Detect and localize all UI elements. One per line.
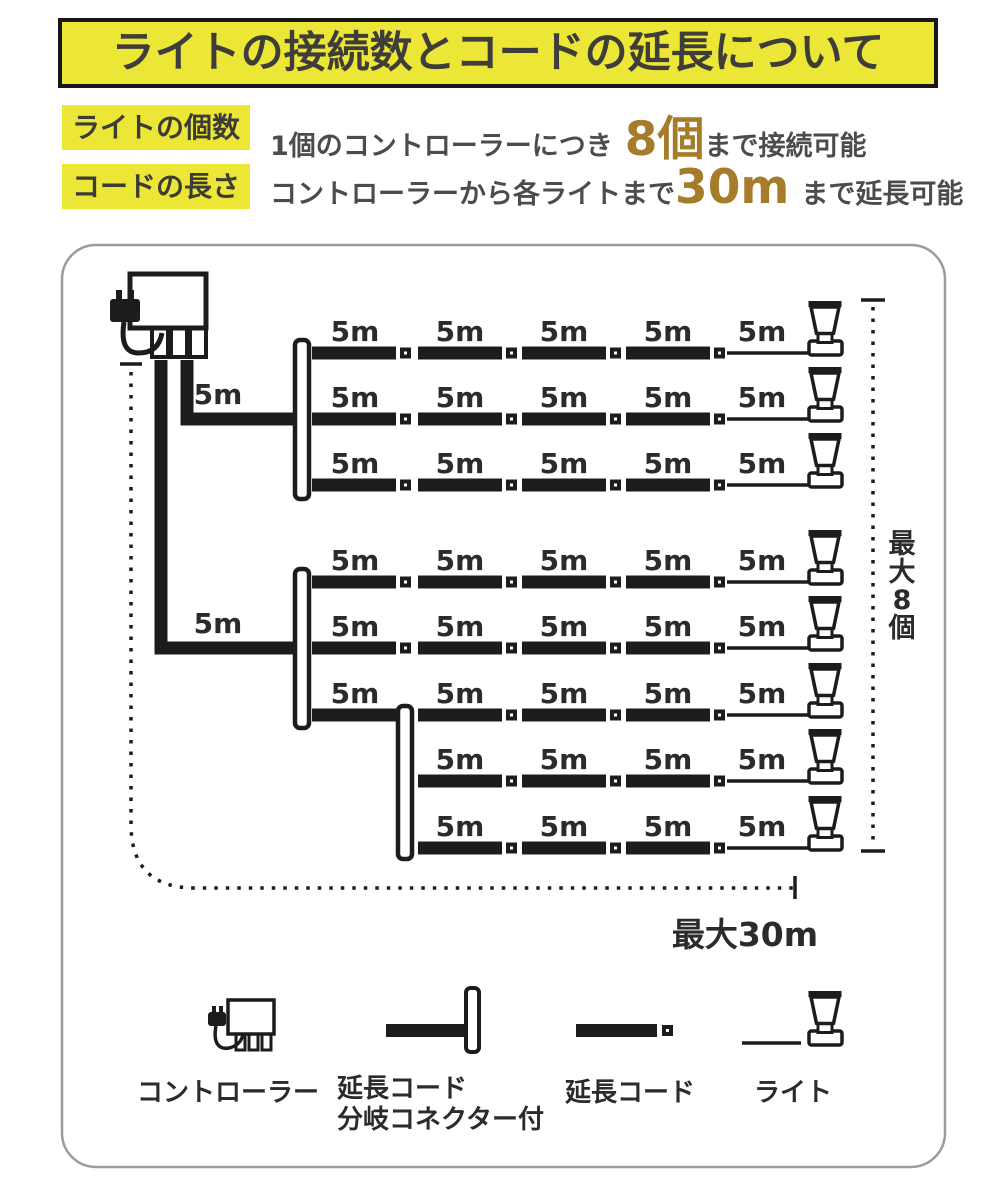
- length-label: 5m: [540, 610, 589, 643]
- light-icon: [809, 533, 843, 584]
- legend-light-icon: [742, 994, 842, 1045]
- length-label: 5m: [738, 381, 787, 414]
- feed-cord: 5m: [187, 360, 298, 419]
- length-label: 5m: [331, 610, 380, 643]
- extension-cord-icon: [418, 842, 502, 855]
- extension-cord-icon: [418, 709, 502, 722]
- length-label: 5m: [738, 447, 787, 480]
- extension-cord-icon: [522, 775, 606, 788]
- cord-row-8: 5m5m5m5m: [418, 799, 842, 855]
- length-label: 5m: [436, 610, 485, 643]
- extension-cord-icon: [522, 642, 606, 655]
- cord-row-6: 5m5m5m5m5m: [312, 666, 842, 722]
- cord-row-5: 5m5m5m5m5m: [312, 599, 842, 655]
- extension-cord-icon: [626, 709, 710, 722]
- controller-icon: [110, 274, 206, 357]
- length-label: 5m: [436, 315, 485, 348]
- extension-cord-icon: [522, 842, 606, 855]
- length-label: 5m: [644, 447, 693, 480]
- legend-branch-cord-icon: [386, 988, 479, 1052]
- max-length-label: 最大30m: [650, 908, 840, 956]
- length-label: 5m: [331, 315, 380, 348]
- extension-cord-icon: [522, 576, 606, 589]
- length-label: 5m: [738, 315, 787, 348]
- length-label: 5m: [540, 447, 589, 480]
- branch-connector-icon: [295, 569, 309, 728]
- extension-cord-icon: [418, 576, 502, 589]
- length-label: 5m: [644, 315, 693, 348]
- cord-row-4: 5m5m5m5m5m: [312, 533, 842, 589]
- light-icon: [809, 599, 843, 650]
- extension-cord-icon: [626, 479, 710, 492]
- length-label: 5m: [436, 810, 485, 843]
- length-label: 5m: [540, 743, 589, 776]
- light-icon: [809, 666, 843, 717]
- legend-label-line1: 延長コード: [337, 1074, 557, 1105]
- branch-connector-icon: [295, 340, 309, 499]
- length-label: 5m: [436, 381, 485, 414]
- extension-cord-icon: [626, 347, 710, 360]
- length-label: 5m: [738, 677, 787, 710]
- length-label: 5m: [644, 743, 693, 776]
- cord-row-1: 5m5m5m5m5m: [312, 304, 842, 360]
- extension-cord-icon: [418, 413, 502, 426]
- length-label: 5m: [644, 544, 693, 577]
- extension-cord-icon: [522, 347, 606, 360]
- length-label: 5m: [436, 677, 485, 710]
- cord-row-2: 5m5m5m5m5m: [312, 370, 842, 426]
- extension-cord-icon: [522, 709, 606, 722]
- page-root: ライトの接続数とコードの延長について ライトの個数 1個のコントローラーにつき8…: [0, 0, 1000, 1200]
- length-label: 5m: [540, 315, 589, 348]
- extension-cord-icon: [626, 642, 710, 655]
- legend-label-line2: 分岐コネクター付: [337, 1105, 557, 1136]
- legend-extension-cord-icon: [576, 1024, 673, 1037]
- light-icon: [809, 370, 843, 421]
- length-label: 5m: [331, 447, 380, 480]
- extension-cord-icon: [418, 347, 502, 360]
- light-icon: [809, 994, 843, 1045]
- max-lights-label: 最大8個: [886, 531, 918, 643]
- length-label: 5m: [738, 544, 787, 577]
- extension-cord-icon: [522, 413, 606, 426]
- extension-cord-icon: [312, 642, 396, 655]
- length-label: 5m: [540, 381, 589, 414]
- length-label: 5m: [644, 810, 693, 843]
- legend-label-branch-cord: 延長コード 分岐コネクター付: [337, 1074, 557, 1136]
- branch-connector-icon: [398, 706, 412, 859]
- cord-row-3: 5m5m5m5m5m: [312, 436, 842, 492]
- extension-cord-icon: [312, 576, 396, 589]
- extension-cord-icon: [626, 413, 710, 426]
- length-label: 5m: [436, 544, 485, 577]
- extension-cord-icon: [418, 775, 502, 788]
- length-label: 5m: [194, 378, 243, 411]
- length-label: 5m: [540, 677, 589, 710]
- length-label: 5m: [194, 607, 243, 640]
- connection-diagram: 5m5m5m5m5m5m5m5m5m5m5m5m5m5m5m5m5m5m5m5m…: [0, 0, 1000, 1200]
- length-label: 5m: [436, 447, 485, 480]
- length-label: 5m: [738, 743, 787, 776]
- extension-cord-icon: [626, 842, 710, 855]
- extension-cord-icon: [312, 413, 396, 426]
- extension-cord-icon: [312, 347, 396, 360]
- light-icon: [809, 732, 843, 783]
- legend-label-light: ライト: [723, 1078, 863, 1109]
- light-icon: [809, 304, 843, 355]
- extension-cord-icon: [312, 479, 396, 492]
- extension-cord-icon: [418, 642, 502, 655]
- extension-cord-icon: [626, 775, 710, 788]
- length-label: 5m: [331, 544, 380, 577]
- extension-cord-icon: [626, 576, 710, 589]
- light-icon: [809, 799, 843, 850]
- length-label: 5m: [540, 810, 589, 843]
- legend-label-controller: コントローラー: [137, 1078, 317, 1109]
- length-label: 5m: [331, 381, 380, 414]
- extension-cord-icon: [522, 479, 606, 492]
- legend-label-extension-cord: 延長コード: [560, 1078, 700, 1109]
- max-lights-measure: [861, 300, 885, 851]
- legend-controller-icon: [208, 1000, 274, 1050]
- length-label: 5m: [644, 610, 693, 643]
- extension-cord-icon: [312, 709, 396, 722]
- cord-row-7: 5m5m5m5m: [418, 732, 842, 788]
- legend-icons: [208, 988, 842, 1052]
- length-label: 5m: [644, 677, 693, 710]
- length-label: 5m: [738, 610, 787, 643]
- length-label: 5m: [331, 677, 380, 710]
- extension-cord-icon: [418, 479, 502, 492]
- length-label: 5m: [540, 544, 589, 577]
- length-label: 5m: [436, 743, 485, 776]
- length-label: 5m: [738, 810, 787, 843]
- length-label: 5m: [644, 381, 693, 414]
- light-icon: [809, 436, 843, 487]
